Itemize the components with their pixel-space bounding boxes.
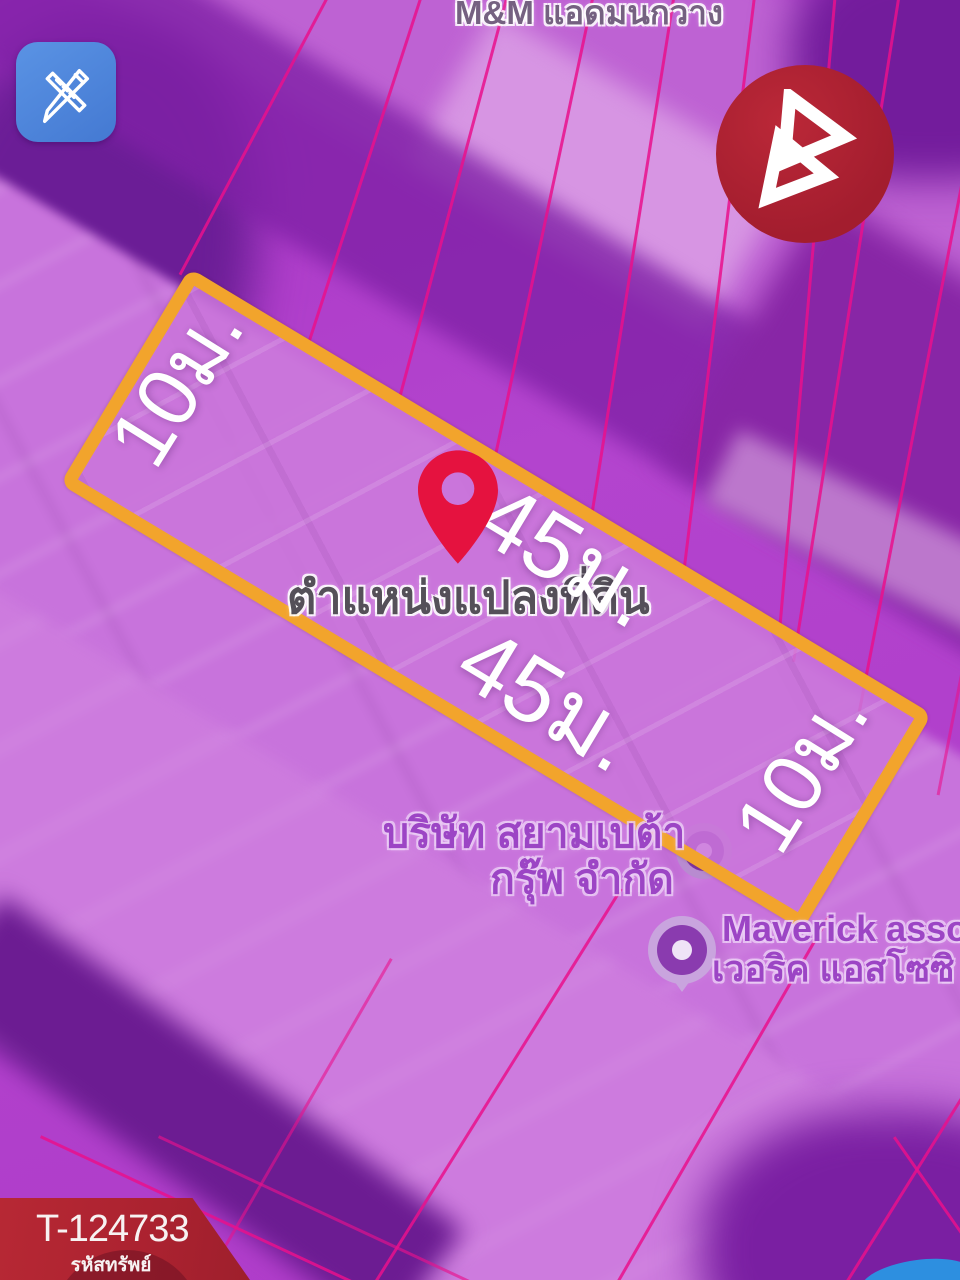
property-code: T-124733: [36, 1208, 189, 1251]
map-poi-maverick-icon[interactable]: [648, 916, 716, 984]
poi-dot: [672, 940, 692, 960]
location-pin-icon: [418, 448, 498, 566]
pencil-ruler-icon: [34, 60, 98, 124]
property-code-caption: รหัสทรัพย์: [36, 1250, 186, 1280]
property-code-banner: T-124733 รหัสทรัพย์: [0, 1198, 250, 1280]
brand-logo: [716, 65, 894, 243]
double-triangle-b-logo-icon: [740, 89, 870, 219]
map-label-business-top: M&M แอดมนกวาง: [455, 0, 723, 31]
map-label-maverick-line1: Maverick asso: [722, 910, 960, 948]
location-pin[interactable]: [418, 448, 498, 566]
measure-tool-button[interactable]: [16, 42, 116, 142]
map-label-company-line1: บริษัท สยามเบต้า: [383, 812, 685, 855]
map-label-company-line2: กรุ๊พ จำกัด: [490, 858, 674, 901]
map-label-maverick-line2: เวอริค แอสโซซิ: [712, 950, 955, 988]
map-screenshot: M&M แอดมนกวาง ตำแหน่งแปลงที่ดิน บริษัท ส…: [0, 0, 960, 1280]
poi-pointer: [672, 978, 692, 992]
